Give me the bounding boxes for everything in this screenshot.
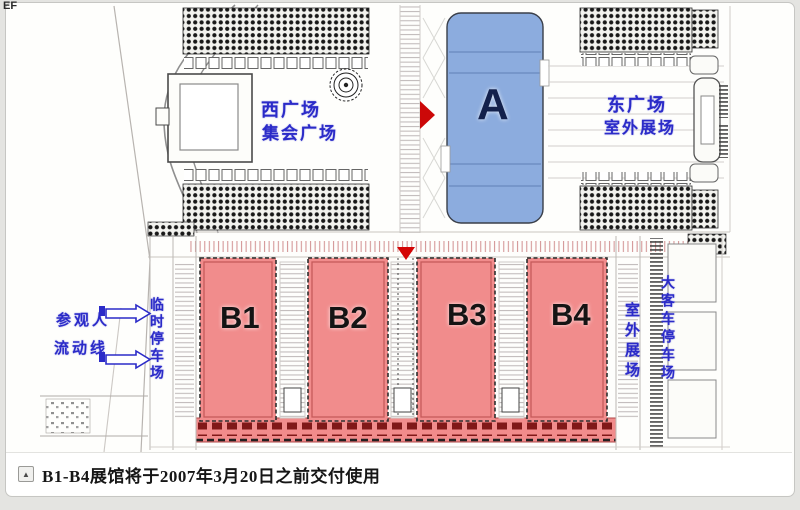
- hall-b3-shape: [417, 258, 495, 421]
- outdoor-exhibition-label: 室外展场: [624, 302, 639, 382]
- east-square-label-line1: 东广场: [607, 96, 667, 114]
- hall-b3-label: B3: [447, 299, 487, 330]
- hall-b4-shape: [527, 258, 607, 421]
- collapse-button[interactable]: ▲: [18, 466, 34, 482]
- west-square-label-line1: 西广场: [261, 101, 321, 119]
- hall-a-label: A: [477, 83, 509, 127]
- corner-text: EF: [3, 1, 17, 12]
- hall-b-shapes: [196, 258, 616, 442]
- caption-text: B1-B4展馆将于2007年3月20日之前交付使用: [42, 462, 380, 487]
- temp-parking-label: 临时停车场: [150, 297, 164, 382]
- visitor-flow-label-line2: 流动线: [54, 341, 108, 356]
- site-plan-graphic: [0, 0, 800, 510]
- east-square-structures: [548, 6, 730, 232]
- entrance-arrow-west-icon: [420, 101, 435, 129]
- entrance-arrow-south-icon: [397, 247, 415, 260]
- east-square-label-line2: 室外展场: [604, 121, 676, 137]
- hall-b1-shape: [200, 258, 276, 421]
- hall-b2-shape: [308, 258, 388, 421]
- west-square-label-line2: 集会广场: [262, 125, 338, 142]
- hall-b4-label: B4: [551, 299, 591, 330]
- caption-bar: ▲ B1-B4展馆将于2007年3月20日之前交付使用: [6, 452, 792, 495]
- boundary-roads: [104, 6, 150, 452]
- hall-b1-label: B1: [220, 302, 260, 333]
- visitor-flow-label-line1: 参观人: [56, 313, 110, 328]
- fountain-icon: [330, 69, 362, 101]
- collapse-icon: ▲: [22, 470, 30, 479]
- bus-parking-label: 大客车停车场: [661, 275, 675, 383]
- hall-b2-label: B2: [328, 302, 368, 333]
